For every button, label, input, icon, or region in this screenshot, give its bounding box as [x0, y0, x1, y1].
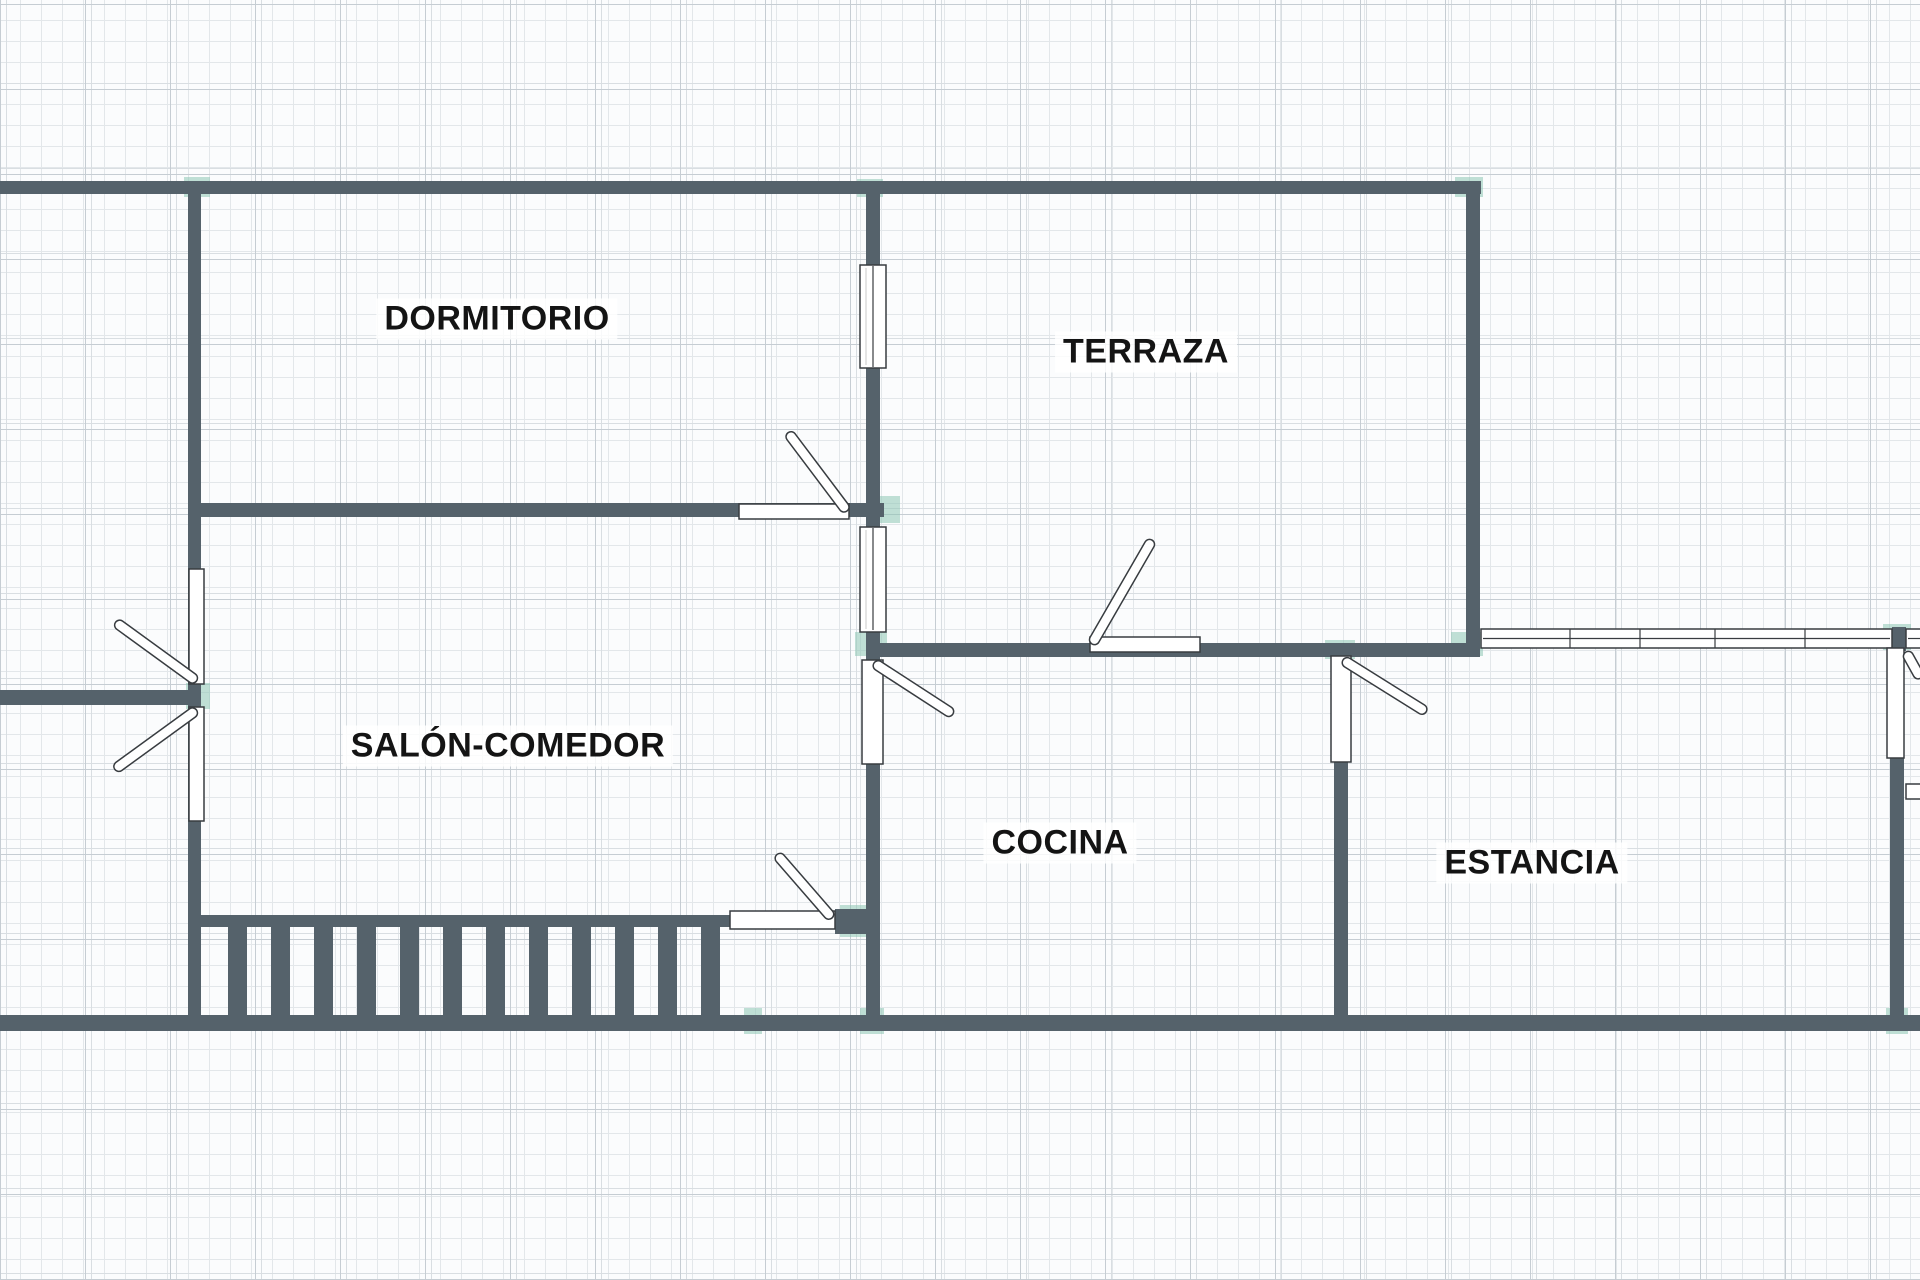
- door-swing-icon-stairs: [730, 851, 836, 929]
- door-swing-icon-west-lower: [112, 706, 204, 821]
- room-label-terraza: TERRAZA: [1055, 332, 1237, 373]
- room-label-salon-comedor: SALÓN-COMEDOR: [343, 726, 673, 767]
- room-label-cocina: COCINA: [983, 823, 1136, 864]
- floor-plan-canvas: DORMITORIO TERRAZA SALÓN-COMEDOR COCINA …: [0, 0, 1920, 1280]
- door-swing-icon-cocina: [862, 659, 956, 764]
- door-swing-icon-estancia: [1331, 656, 1429, 762]
- window-icon-salon-terraza: [860, 527, 886, 632]
- room-label-estancia: ESTANCIA: [1436, 843, 1627, 884]
- stairs-icon: [201, 915, 735, 1015]
- wall-bottom: [0, 1015, 1920, 1031]
- door-swing-icon-west-upper: [113, 569, 204, 685]
- wall-west-wing: [0, 690, 190, 705]
- wall-top: [0, 181, 1481, 194]
- walls: [0, 181, 1920, 1031]
- wall-terraza-right: [1466, 181, 1480, 657]
- floor-plan-drawing: [0, 0, 1920, 1280]
- wall-stairs-junction: [835, 909, 868, 934]
- door-swing-icon-dormitorio: [739, 430, 851, 519]
- window-icon-estancia-band: [1481, 629, 1920, 648]
- window-icon-dormitorio-terraza: [860, 265, 886, 368]
- room-label-dormitorio: DORMITORIO: [376, 299, 617, 340]
- door-swing-icon-terraza: [1088, 538, 1200, 652]
